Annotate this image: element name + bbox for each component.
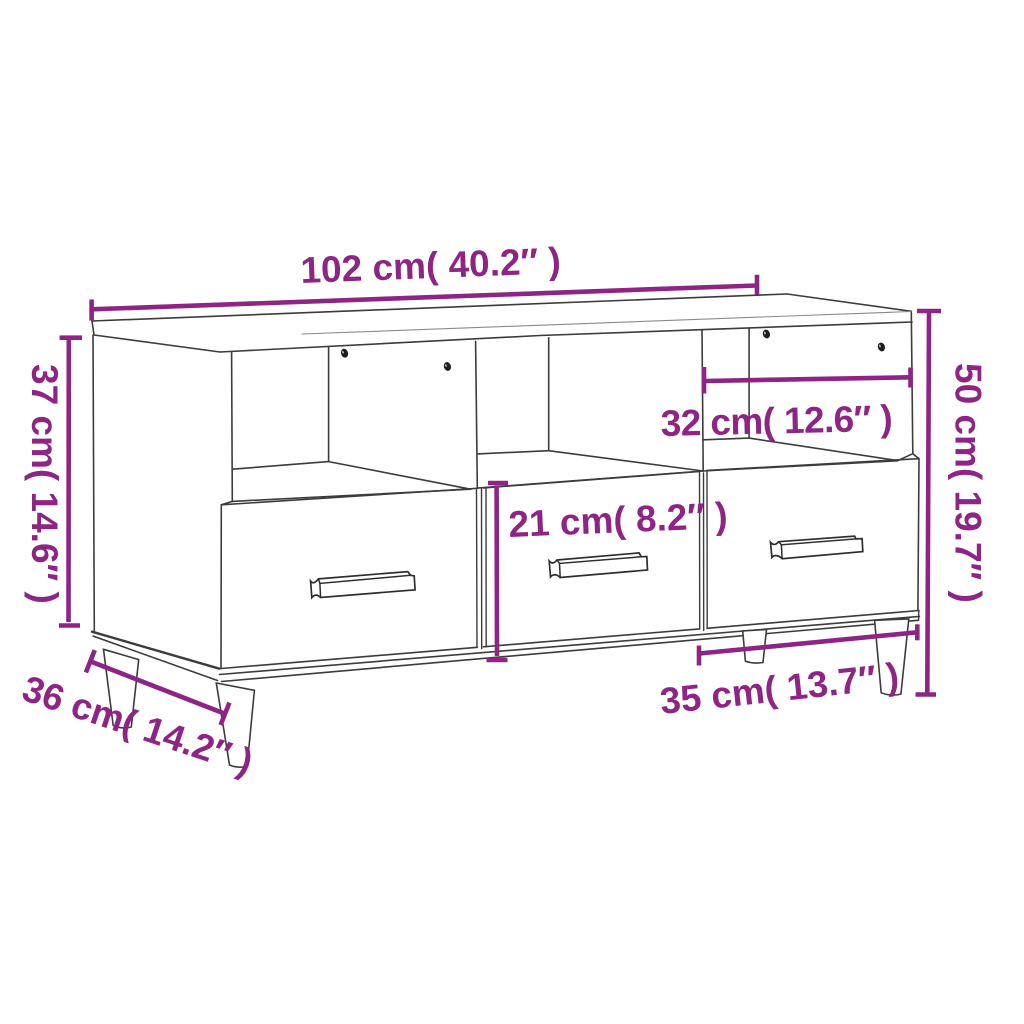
svg-text:37 cm( 14.6″ ): 37 cm( 14.6″ ) <box>24 364 65 604</box>
svg-text:50 cm( 19.7″ ): 50 cm( 19.7″ ) <box>948 363 989 603</box>
svg-text:32 cm( 12.6″ ): 32 cm( 12.6″ ) <box>660 398 892 444</box>
